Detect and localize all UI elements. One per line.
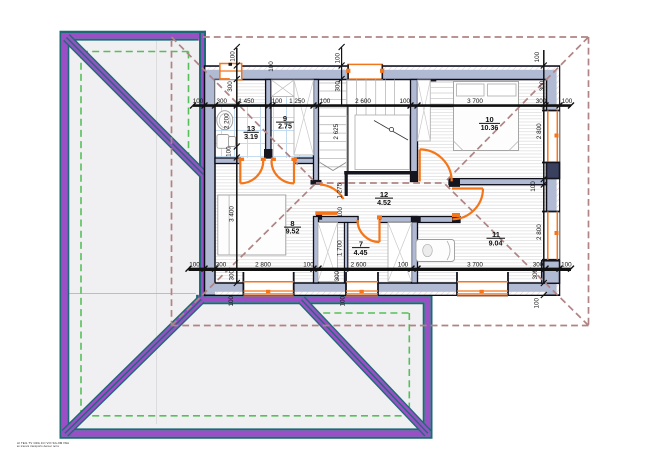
svg-text:8: 8 — [290, 219, 294, 228]
svg-text:100: 100 — [561, 261, 572, 268]
svg-text:300: 300 — [229, 270, 236, 281]
svg-text:100: 100 — [228, 295, 235, 306]
svg-text:100: 100 — [193, 98, 204, 105]
svg-text:2 625: 2 625 — [333, 123, 340, 139]
svg-text:100: 100 — [189, 261, 200, 268]
svg-text:3.19: 3.19 — [244, 133, 258, 141]
svg-text:300: 300 — [536, 98, 547, 105]
svg-text:1 450: 1 450 — [238, 98, 254, 105]
svg-text:9.04: 9.04 — [489, 239, 503, 247]
svg-text:10.36: 10.36 — [481, 124, 499, 132]
svg-text:13: 13 — [247, 124, 255, 133]
svg-text:av travels transports denser t: av travels transports denser terra — [17, 445, 59, 448]
svg-text:3 700: 3 700 — [467, 98, 483, 105]
svg-text:300: 300 — [334, 270, 341, 281]
svg-text:100: 100 — [534, 297, 541, 308]
svg-text:2 600: 2 600 — [351, 261, 367, 268]
svg-text:9: 9 — [283, 114, 287, 123]
svg-text:2 800: 2 800 — [255, 261, 271, 268]
svg-text:300: 300 — [533, 261, 544, 268]
svg-text:2 800: 2 800 — [536, 224, 543, 240]
svg-text:3 400: 3 400 — [229, 206, 236, 222]
svg-text:300: 300 — [335, 81, 342, 92]
svg-text:100: 100 — [335, 53, 342, 64]
svg-text:12: 12 — [380, 190, 388, 199]
svg-text:9.52: 9.52 — [286, 228, 300, 236]
svg-text:100: 100 — [530, 181, 537, 192]
svg-text:100: 100 — [398, 261, 409, 268]
svg-text:100: 100 — [339, 295, 346, 306]
svg-text:100: 100 — [268, 61, 275, 72]
svg-text:1 250: 1 250 — [289, 98, 305, 105]
svg-text:2 800: 2 800 — [536, 123, 543, 139]
svg-text:300: 300 — [227, 81, 234, 92]
svg-text:1 700: 1 700 — [336, 240, 343, 256]
svg-text:3 700: 3 700 — [467, 261, 483, 268]
svg-text:100: 100 — [337, 207, 344, 218]
svg-text:2 600: 2 600 — [355, 98, 371, 105]
svg-text:300: 300 — [217, 98, 228, 105]
svg-text:100: 100 — [399, 98, 410, 105]
svg-text:10: 10 — [485, 115, 493, 124]
svg-text:300: 300 — [216, 261, 227, 268]
svg-text:2.75: 2.75 — [278, 123, 292, 131]
svg-text:100: 100 — [562, 98, 573, 105]
svg-text:2 200: 2 200 — [223, 113, 230, 129]
svg-text:100: 100 — [534, 51, 541, 62]
svg-text:4.45: 4.45 — [354, 249, 368, 257]
svg-text:11: 11 — [492, 230, 500, 239]
svg-text:100: 100 — [272, 98, 283, 105]
svg-text:100: 100 — [320, 98, 331, 105]
svg-text:100: 100 — [303, 261, 314, 268]
svg-text:7: 7 — [359, 239, 363, 248]
svg-text:4.52: 4.52 — [377, 199, 391, 207]
svg-text:300: 300 — [539, 80, 546, 91]
svg-text:100: 100 — [225, 146, 232, 157]
svg-text:100: 100 — [230, 51, 237, 62]
svg-text:300: 300 — [532, 269, 539, 280]
svg-text:1 275: 1 275 — [336, 182, 343, 198]
